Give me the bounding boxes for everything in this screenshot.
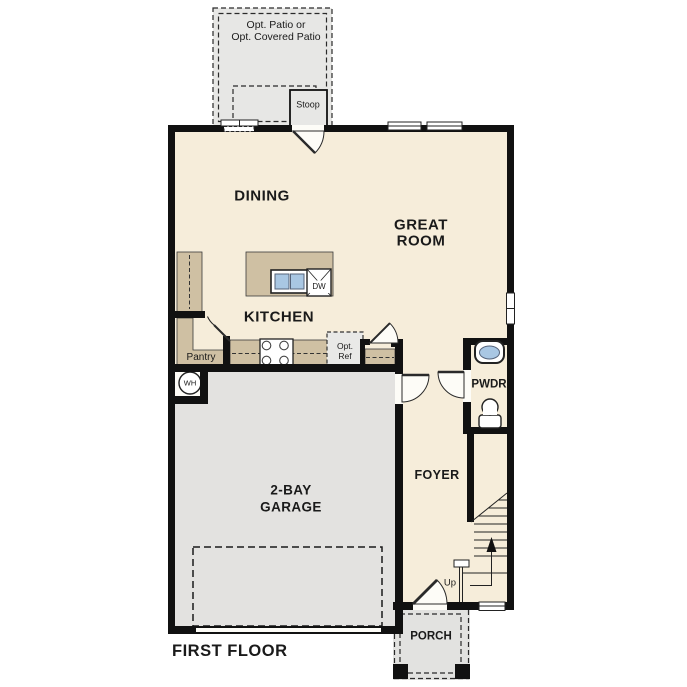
stove [260,339,293,367]
first-floor-plan: Opt. Patio or Opt. Covered Patio Stoop D… [0,0,687,687]
great-room-label-line1: GREAT [394,218,448,233]
porch-outline [393,610,470,680]
dining-label: DINING [234,189,290,204]
water-heater-label: WH [184,379,197,387]
pantry-label: Pantry [187,353,216,363]
porch-label: PORCH [410,631,452,643]
page-title: FIRST FLOOR [172,643,288,660]
window-stair [479,602,505,611]
opt-ref-label-line2: Ref [338,352,351,361]
powder-label: PWDR [471,379,506,391]
dishwasher-label: DW [312,283,325,291]
opt-ref-label-line1: Opt. [337,342,353,351]
patio-label-line2: Opt. Covered Patio [231,32,320,43]
porch-column-left [393,664,408,679]
kitchen-sink [271,270,308,293]
kitchen-label: KITCHEN [244,310,314,325]
patio-label-line1: Opt. Patio or [247,20,306,31]
window-great-room-1 [388,122,421,130]
great-room-label-line2: ROOM [397,234,446,249]
stair-newel [454,560,469,567]
window-great-room-2 [427,122,462,130]
powder-sink [475,341,504,363]
porch-column-right [455,664,470,679]
garage-label-line2: GARAGE [260,500,322,514]
stoop-label: Stoop [296,101,320,110]
window-great-room-side [507,293,515,324]
foyer-label: FOYER [414,469,459,482]
garage-label-line1: 2-BAY [270,483,311,497]
window-dining [221,120,258,132]
stairs-up-label: Up [444,578,456,588]
